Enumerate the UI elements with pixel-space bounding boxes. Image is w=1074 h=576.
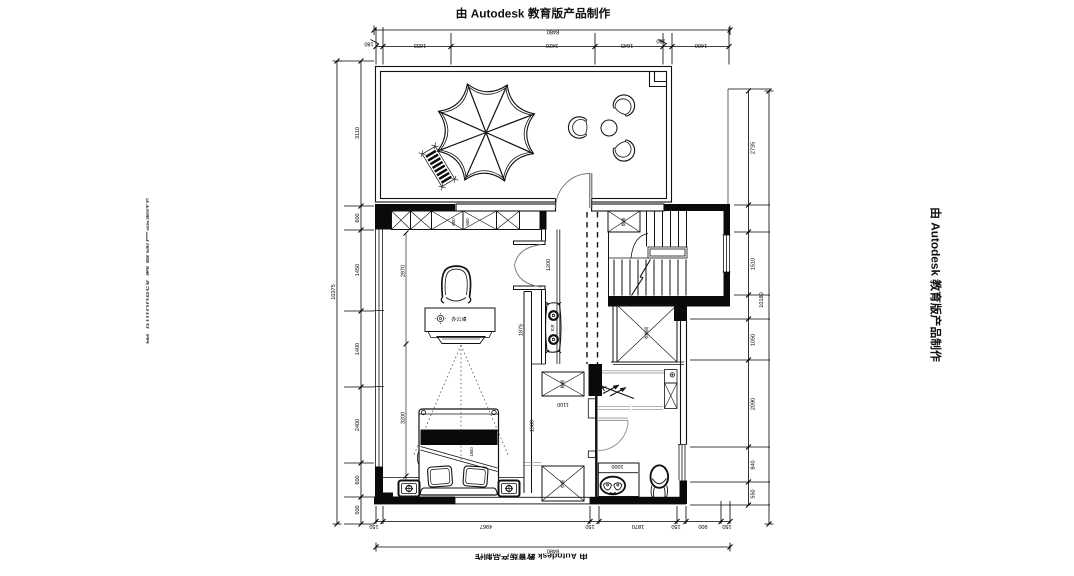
svg-text:由 Autodesk 教育版产品制作: 由 Autodesk 教育版产品制作: [929, 207, 943, 362]
svg-text:烟道: 烟道: [621, 217, 626, 226]
svg-text:550: 550: [751, 489, 757, 498]
svg-text:玄关: 玄关: [550, 324, 555, 332]
svg-text:由 Autodesk 教育版产品制作: 由 Autodesk 教育版产品制作: [142, 198, 155, 345]
svg-text:150: 150: [585, 523, 594, 529]
svg-text:鞋柜: 鞋柜: [560, 380, 565, 388]
svg-text:衣帽间: 衣帽间: [644, 327, 649, 340]
svg-text:10375: 10375: [331, 284, 337, 300]
svg-text:3200: 3200: [401, 412, 407, 424]
svg-text:1870: 1870: [632, 523, 644, 529]
svg-text:办公桌: 办公桌: [451, 316, 467, 323]
svg-text:1510: 1510: [751, 258, 757, 270]
svg-text:180: 180: [656, 38, 665, 44]
svg-text:1450: 1450: [355, 264, 361, 276]
svg-text:180: 180: [364, 41, 373, 47]
svg-text:2400: 2400: [355, 419, 361, 431]
svg-text:由 Autodesk 教育版产品制作: 由 Autodesk 教育版产品制作: [456, 7, 611, 21]
svg-text:1200: 1200: [546, 259, 552, 271]
svg-text:8480: 8480: [547, 547, 559, 553]
svg-text:4967: 4967: [480, 523, 492, 529]
svg-text:500: 500: [355, 505, 361, 514]
svg-text:10180: 10180: [759, 292, 765, 308]
svg-text:2735: 2735: [751, 142, 757, 154]
svg-text:1000: 1000: [612, 463, 624, 469]
svg-text:600: 600: [355, 213, 361, 222]
svg-text:1500: 1500: [530, 420, 536, 432]
svg-text:3420: 3420: [546, 42, 558, 48]
svg-text:600: 600: [355, 475, 361, 484]
svg-text:600: 600: [451, 218, 456, 226]
svg-text:1100: 1100: [557, 401, 569, 407]
svg-text:由 Autodesk 教育版产品制作: 由 Autodesk 教育版产品制作: [475, 551, 588, 561]
svg-text:600: 600: [465, 218, 470, 226]
svg-text:2090: 2090: [751, 398, 757, 410]
svg-text:150: 150: [671, 523, 680, 529]
svg-text:1050: 1050: [751, 334, 757, 346]
svg-text:3110: 3110: [355, 127, 361, 139]
svg-text:1800: 1800: [469, 447, 474, 457]
svg-text:2870: 2870: [401, 265, 407, 277]
svg-text:1400: 1400: [355, 343, 361, 355]
svg-text:900: 900: [698, 523, 707, 529]
svg-text:1400: 1400: [695, 42, 707, 48]
svg-text:150: 150: [369, 523, 378, 529]
svg-text:840: 840: [751, 460, 757, 469]
svg-text:150: 150: [722, 523, 731, 529]
svg-text:1645: 1645: [621, 42, 633, 48]
svg-text:衣柜: 衣柜: [560, 480, 565, 488]
svg-text:1655: 1655: [414, 42, 426, 48]
svg-text:8480: 8480: [547, 29, 559, 35]
